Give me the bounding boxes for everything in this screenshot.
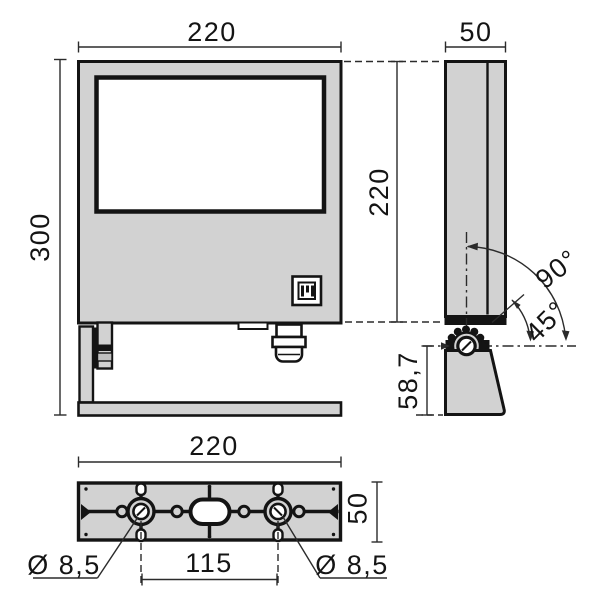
plate-dot — [84, 533, 87, 536]
bracket-base-front — [79, 403, 342, 416]
dim-bracket-depth: 50 — [343, 482, 383, 542]
front-view — [79, 62, 342, 416]
hole-diameter-right-label: Ø 8,5 — [315, 550, 389, 580]
dim-front-width: 220 — [79, 17, 342, 53]
bracket-arm — [80, 327, 94, 403]
dim-bracket-length-label: 220 — [189, 431, 239, 461]
cable-gland-neck — [277, 325, 302, 338]
plate-dot — [208, 485, 211, 488]
rib-boss — [239, 506, 249, 516]
rib-boss — [117, 506, 127, 516]
bracket-base-side — [446, 351, 505, 415]
bottom-tab — [239, 323, 268, 330]
bottom-view: 220 — [27, 431, 389, 587]
center-cable-slot — [191, 500, 230, 525]
locking-knob-band — [98, 345, 113, 352]
dim-front-height: 300 — [25, 60, 67, 416]
cable-gland — [273, 325, 306, 362]
rib-boss — [294, 506, 304, 516]
hole-diameter-left-label: Ø 8,5 — [27, 550, 101, 580]
brand-logo-glyph — [306, 286, 309, 293]
dim-hole-spacing-label: 115 — [185, 548, 233, 578]
rib-boss — [172, 506, 182, 516]
dim-housing-height-label: 220 — [364, 167, 394, 217]
keyway-slot — [137, 484, 146, 496]
technical-drawing-canvas: 90° 45° 220 50 300 — [0, 0, 600, 600]
brand-logo-glyph — [301, 286, 304, 297]
cable-gland-nut — [273, 337, 306, 347]
dim-pivot-height: 58,7 — [393, 346, 443, 415]
plate-dot — [84, 487, 87, 490]
plate-dot — [332, 533, 335, 536]
front-lens-window — [97, 78, 325, 212]
keyway-slot — [274, 484, 283, 496]
dim-bracket-depth-label: 50 — [343, 491, 373, 524]
arc-arrow — [562, 330, 570, 341]
dim-front-height-label: 300 — [25, 212, 55, 262]
locking-knob-band — [98, 353, 113, 361]
brand-logo — [293, 277, 322, 306]
plate-dot — [332, 487, 335, 490]
side-housing — [446, 62, 506, 317]
dim-side-depth: 50 — [446, 17, 506, 53]
plate-dot — [208, 535, 211, 538]
dim-pivot-height-label: 58,7 — [393, 351, 423, 410]
dim-side-depth-label: 50 — [459, 17, 492, 47]
angle-45-label: 45° — [519, 295, 572, 348]
dim-front-width-label: 220 — [187, 17, 237, 47]
side-view: 90° 45° — [423, 62, 584, 415]
floodlight-dimension-drawing: 90° 45° 220 50 300 — [0, 0, 600, 600]
brand-logo-glyph — [311, 286, 314, 297]
angle-90-label: 90° — [530, 243, 584, 295]
dim-bracket-length: 220 — [79, 431, 342, 468]
dim-housing-height: 220 — [364, 62, 403, 323]
